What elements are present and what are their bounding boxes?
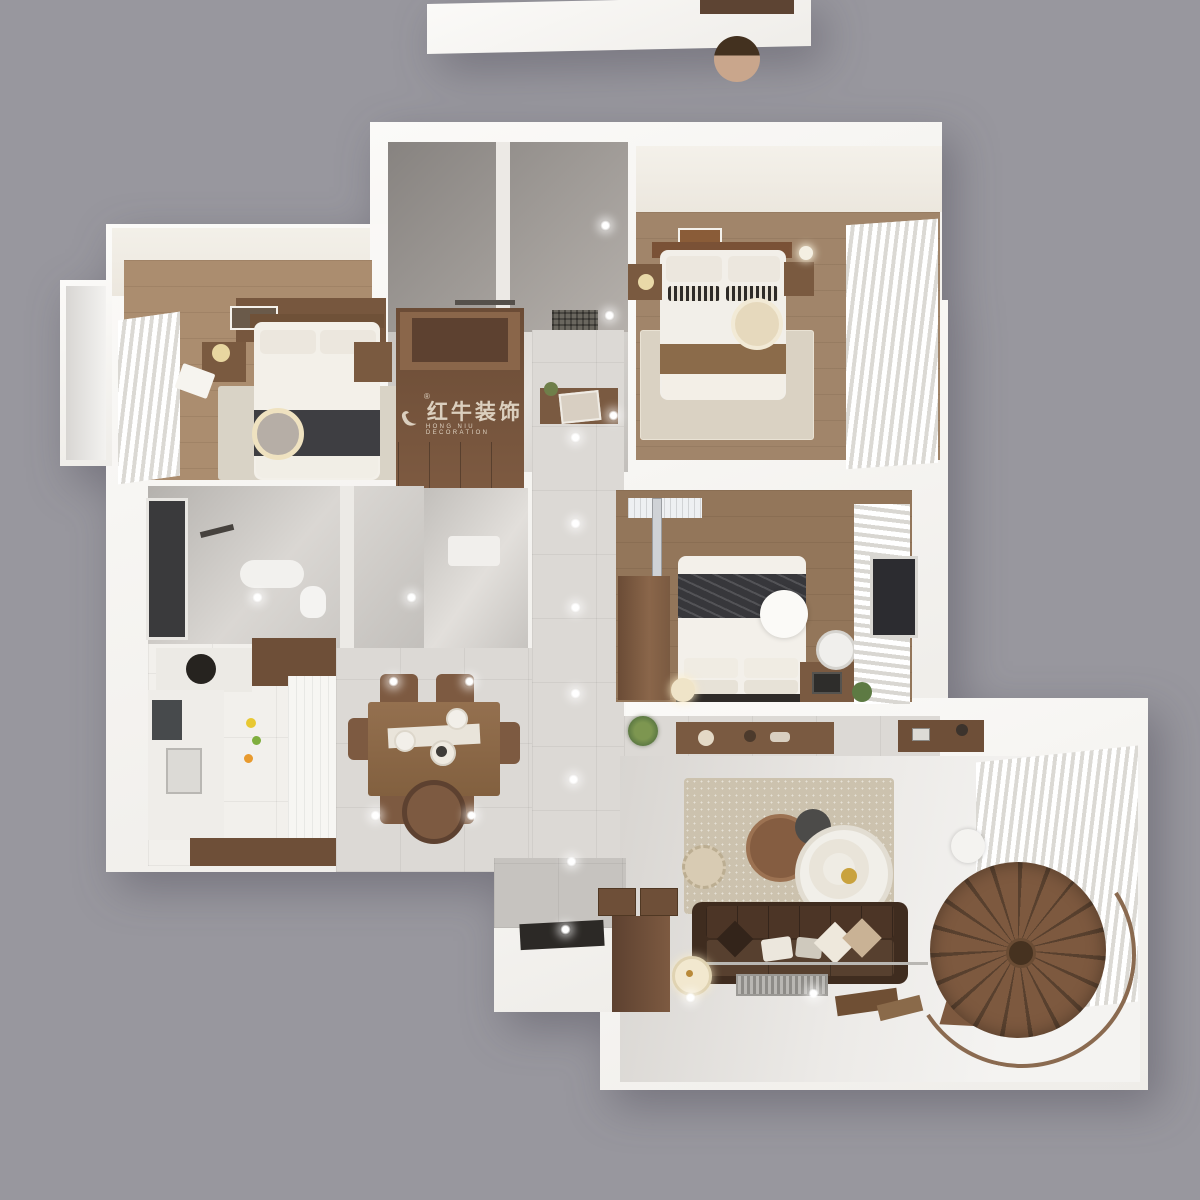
laundry-room-floor [424,488,528,652]
master-nightstand-right [784,262,814,296]
ceiling-light-dot [568,774,579,785]
sideboard-vase [744,730,756,742]
camera-decor [912,728,930,741]
master-pillow-left [666,256,722,282]
brand-name-cn: 红牛装饰 [427,402,523,424]
laundry-sink [448,536,500,566]
third-bedroom-pillow2-right [744,680,798,694]
bull-swoosh-icon [398,406,420,432]
third-bedroom-wardrobe [618,576,670,700]
floor-lamp-arm [688,962,928,965]
dining-chair-top-left [380,674,418,702]
swivel-chair [402,780,466,844]
fruit-orange [244,754,253,763]
ceiling-light-dot [808,988,819,999]
third-bedroom-headboard [676,694,808,702]
second-bedroom-pillow-left [260,330,316,354]
ceiling-light-dot [466,810,477,821]
clothes-rack [652,498,662,578]
sideboard-tray [770,732,790,742]
towel-rail [455,300,515,305]
third-bedroom-pillow-left [684,658,738,678]
fridge [152,700,182,740]
desk-chair [816,630,856,670]
dark-vase [956,724,968,736]
ceiling-light-dot [252,592,263,603]
ceiling-light-dot [600,220,611,231]
master-pillow-right [728,256,780,282]
rooms-layer: ® 红牛装饰 HONG NIU DECORATION [0,0,1200,1200]
serving-bowl [436,746,447,757]
toilet [300,586,326,618]
master-duvet-foot [662,374,784,400]
kitchen-base-cabinet [190,838,336,866]
shoe-cabinet [612,916,670,1012]
hall-wardrobe-niche [412,318,508,362]
master-throw-blanket [660,344,786,374]
sideboard-bowl [698,730,714,746]
kitchen-sink [166,748,202,794]
ceiling-light-dot [570,688,581,699]
master-round-cushion [731,298,783,350]
bay-window-sill [66,286,106,460]
plate-right [446,708,468,730]
second-bedroom-blinds [118,312,180,485]
registered-mark: ® [424,392,430,401]
third-bedroom-round-pillow [760,590,808,638]
ceiling-light-dot [570,432,581,443]
second-bedroom-round-cushion [252,408,304,460]
sofa-pillow-white-sm [761,936,794,962]
knit-pouf [682,845,726,889]
laptop [812,672,842,694]
ceiling-light-dot [570,518,581,529]
fruit-lime [252,736,261,745]
third-bedroom-window [870,556,918,638]
ceiling-light-dot [370,810,381,821]
floor-lamp-shade [672,956,712,996]
fruit-lemon [246,718,256,728]
shoe-box-left [598,888,636,916]
master-curtains [846,219,938,469]
ceiling-light-dot [604,310,615,321]
lounge-gold-pillow [841,868,857,884]
brand-name-en: HONG NIU DECORATION [426,424,524,436]
ceiling-light-dot [566,856,577,867]
stair-center-pole [1006,938,1036,968]
console-picture [559,390,602,424]
bathroom-divider-wall [340,486,354,652]
shoe-box-right [640,888,678,916]
ceiling-light-dot [464,676,475,687]
bedside-lamp [671,678,695,702]
bathroom-window [146,498,188,640]
cooktop [186,654,216,684]
bathroom-vanity [240,560,304,588]
master-lamp-left [638,274,654,290]
plate-left [394,730,416,752]
third-bedroom-plant [852,682,872,702]
potted-fern [628,716,658,746]
kitchen-partition-wall [288,676,338,854]
ceiling-light-dot [560,924,571,935]
radiator [628,498,702,518]
ceiling-light-dot [388,676,399,687]
ceiling-light-dot [685,992,696,1003]
hall-wardrobe-doors [398,442,522,488]
ceiling-light-dot [406,592,417,603]
second-bedroom-lamp [212,344,230,362]
watermark: ® 红牛装饰 HONG NIU DECORATION [398,396,524,442]
floor-lamp-finial [686,970,693,977]
window-shelf [898,720,984,752]
master-ceiling-band [636,146,942,212]
floorplan-canvas: ® 红牛装饰 HONG NIU DECORATION [0,0,1200,1200]
second-bedroom-nightstand-right [354,342,392,382]
ceiling-light-dot [570,602,581,613]
master-pendant-light [799,246,813,260]
third-bedroom-pillow-right [744,658,798,678]
ceiling-light-dot [608,410,619,421]
master-striped-pillow-left [668,286,720,301]
console-plant [544,382,558,396]
